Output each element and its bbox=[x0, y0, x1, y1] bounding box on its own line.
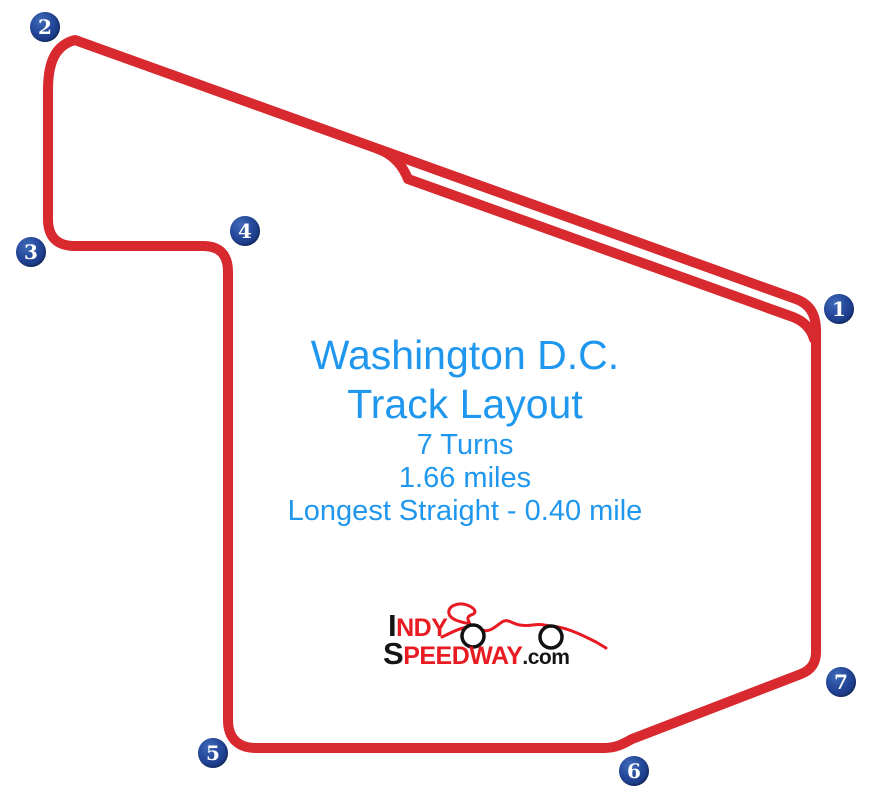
turn-marker-3: 3 bbox=[16, 237, 46, 267]
track-title-line1: Washington D.C. bbox=[255, 331, 675, 380]
stat-turn-count: 7 Turns bbox=[255, 429, 675, 462]
turn-marker-5: 5 bbox=[198, 738, 228, 768]
logo-domain-suffix: .com bbox=[522, 646, 569, 669]
turn-marker-1: 1 bbox=[824, 294, 854, 324]
stat-track-length: 1.66 miles bbox=[255, 462, 675, 495]
title-block: Washington D.C. Track Layout 7 Turns 1.6… bbox=[255, 331, 675, 528]
logo-speedway-initial: S bbox=[383, 636, 403, 671]
track-map-page: Washington D.C. Track Layout 7 Turns 1.6… bbox=[0, 0, 873, 798]
turn-marker-6: 6 bbox=[619, 756, 649, 786]
logo-word-speedway: SPEEDWAY.com bbox=[383, 636, 569, 672]
indyspeedway-logo: INDY SPEEDWAY.com bbox=[380, 600, 625, 690]
logo-speedway-rest: PEEDWAY bbox=[403, 642, 522, 670]
stat-longest-straight: Longest Straight - 0.40 mile bbox=[255, 495, 675, 528]
turn-marker-2: 2 bbox=[30, 12, 60, 42]
turn-marker-4: 4 bbox=[230, 216, 260, 246]
turn-marker-7: 7 bbox=[826, 667, 856, 697]
track-title-line2: Track Layout bbox=[255, 380, 675, 429]
